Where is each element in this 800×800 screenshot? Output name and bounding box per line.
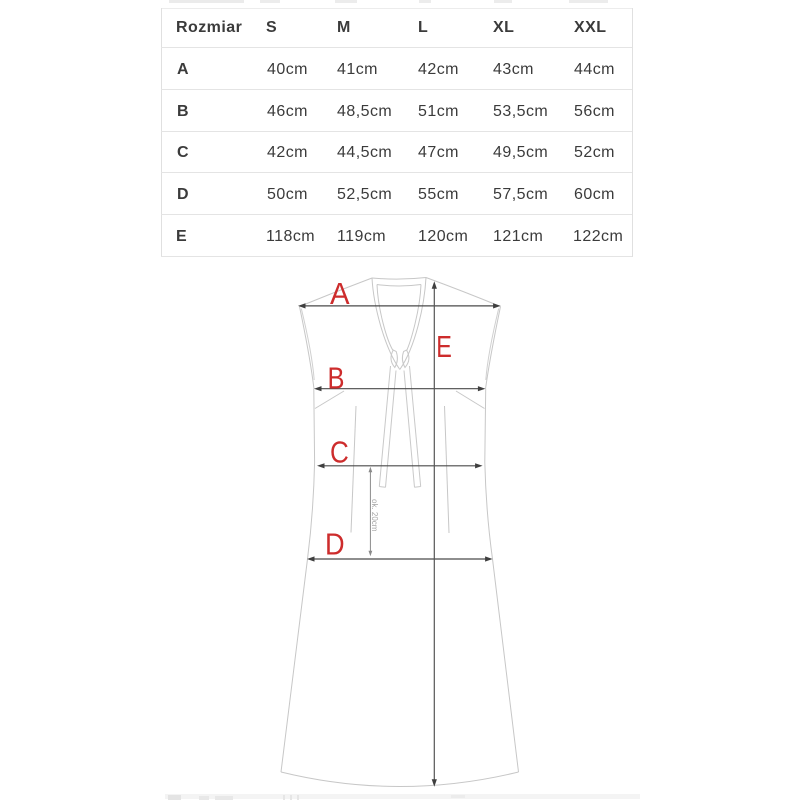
svg-text:E: E bbox=[436, 329, 452, 364]
svg-text:ok. 20cm: ok. 20cm bbox=[370, 499, 379, 532]
svg-text:B: B bbox=[328, 361, 345, 396]
svg-text:C: C bbox=[330, 434, 349, 469]
svg-text:D: D bbox=[325, 527, 345, 562]
svg-text:A: A bbox=[330, 276, 350, 311]
